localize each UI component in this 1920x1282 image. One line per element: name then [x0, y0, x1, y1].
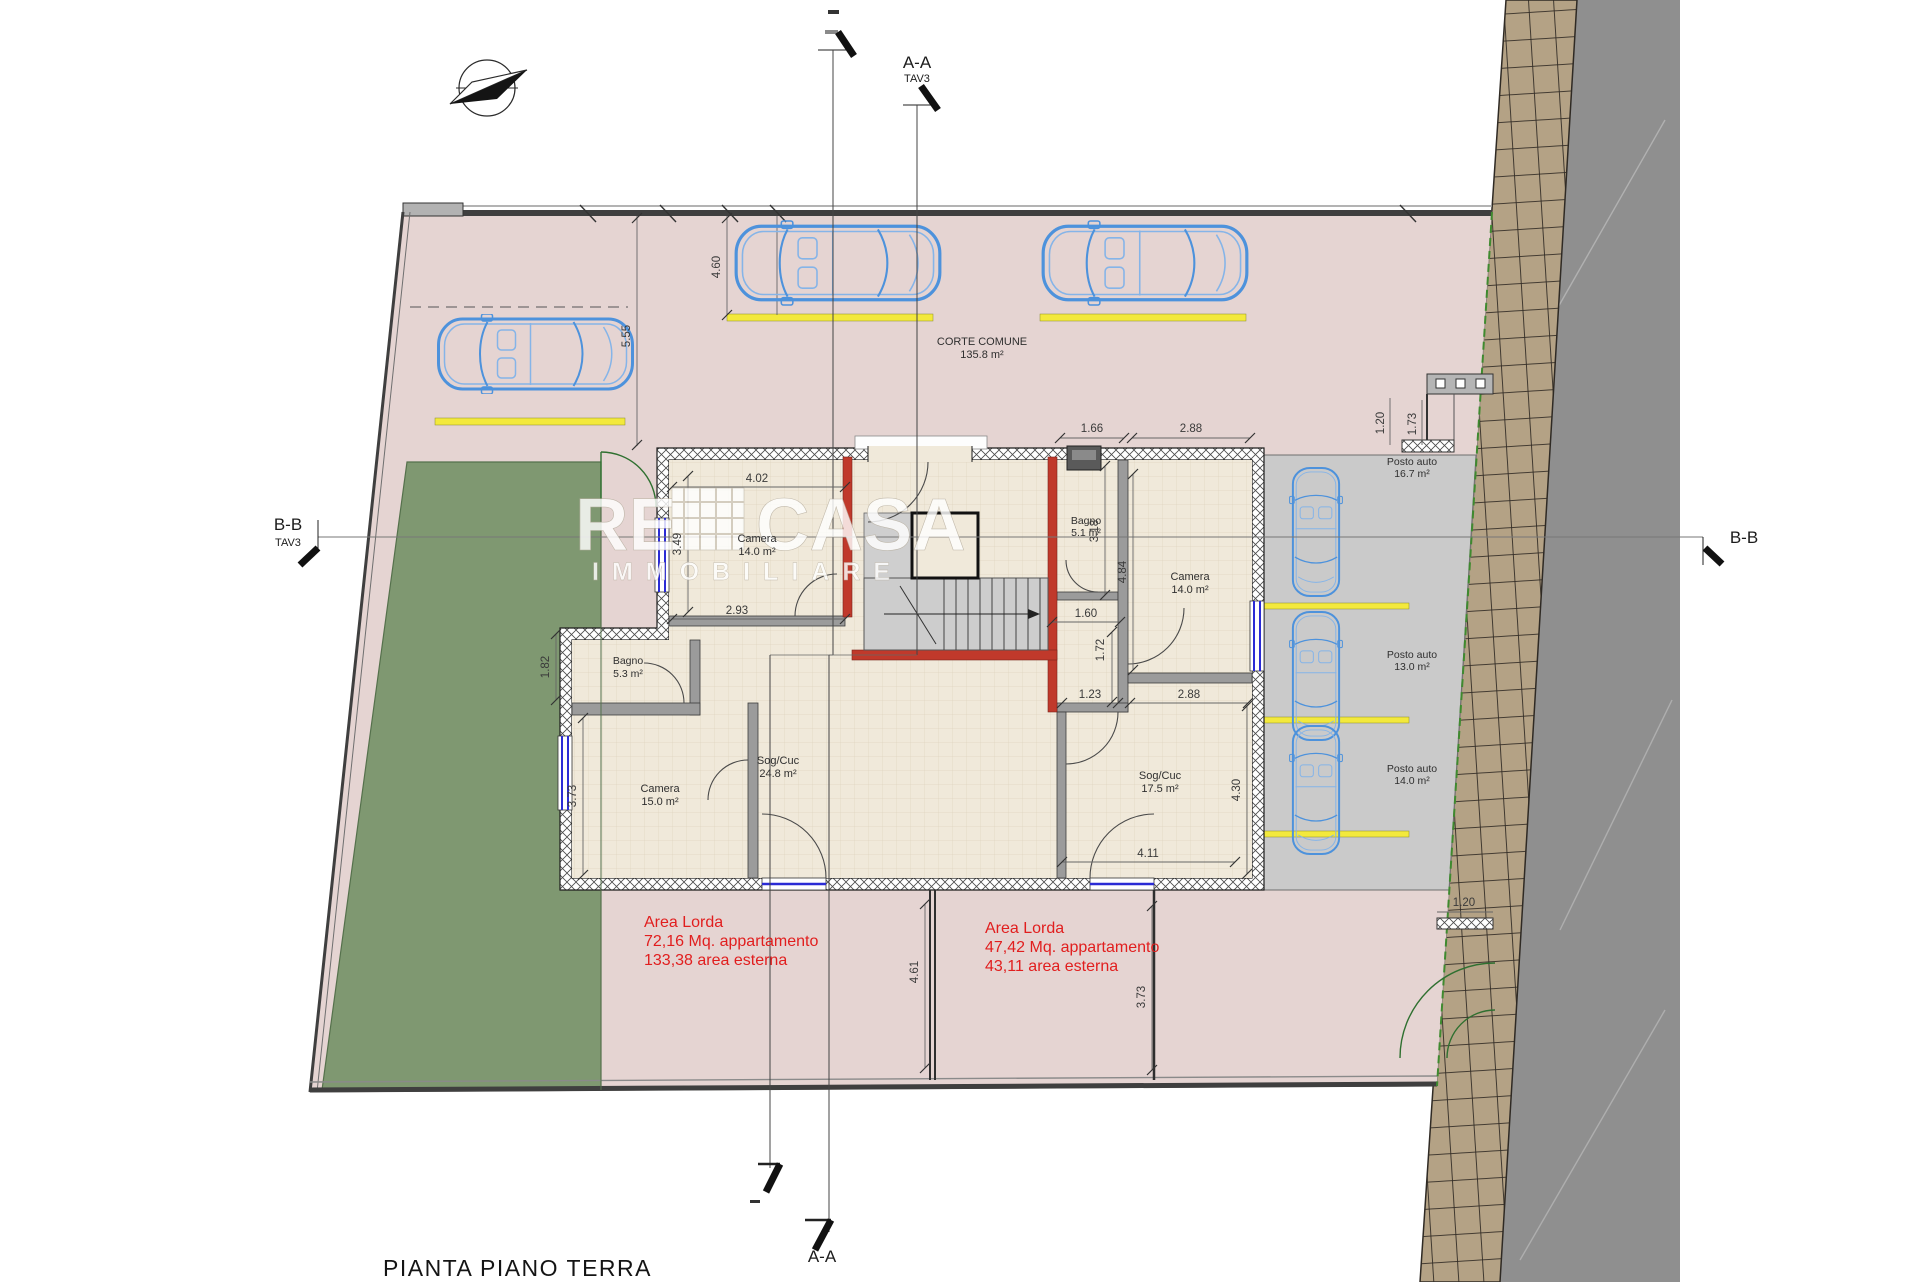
svg-text:TAV3: TAV3: [904, 73, 930, 85]
svg-text:TAV3: TAV3: [275, 537, 301, 549]
chimney-vent: [1067, 446, 1101, 470]
dim-cam14r-w: 2.88: [1180, 423, 1202, 435]
dim-hall-b: 1.23: [1079, 689, 1101, 701]
svg-text:Area Lorda: Area Lorda: [644, 914, 723, 931]
svg-text:47,42 Mq. appartamento: 47,42 Mq. appartamento: [985, 939, 1159, 956]
room-label-sogcuc175: Sog/Cuc: [1139, 770, 1182, 782]
page-title: PIANTA PIANO TERRA: [383, 1255, 652, 1281]
section-label-aa-bottom: A-A: [808, 1247, 837, 1266]
room-label-camera15: Camera: [640, 783, 680, 795]
room-label-posto3: Posto auto: [1387, 763, 1437, 775]
dim-cam14l-w: 4.02: [746, 473, 768, 485]
dim-bagno51-h: 3.18: [1089, 520, 1101, 542]
svg-text:14.0 m²: 14.0 m²: [1394, 775, 1430, 787]
svg-text:Area Lorda: Area Lorda: [985, 920, 1064, 937]
svg-text:17.5 m²: 17.5 m²: [1141, 783, 1179, 795]
svg-text:15.0 m²: 15.0 m²: [641, 796, 679, 808]
room-label-posto2: Posto auto: [1387, 649, 1437, 661]
room-label-camera14-left: Camera: [737, 533, 777, 545]
dim-br-a: 1.20: [1453, 897, 1475, 909]
entry-opening: [868, 446, 972, 462]
watermark-re: RE: [575, 483, 678, 566]
dim-court-left: 5.55: [621, 325, 633, 347]
svg-text:133,38 area esterna: 133,38 area esterna: [644, 952, 787, 969]
dim-hall-h: 1.72: [1095, 639, 1107, 661]
dim-cam14r-h: 4.84: [1117, 560, 1129, 583]
floor-plan-drawing: RE CASA IMMOBILIARE CORTE COMUNE 135.8 m…: [0, 0, 1920, 1282]
svg-text:16.7 m²: 16.7 m²: [1394, 468, 1430, 480]
svg-text:24.8 m²: 24.8 m²: [759, 768, 797, 780]
section-label-bb-right: B-B: [1730, 528, 1758, 547]
stall-divider-line: [1264, 603, 1409, 609]
section-label-bb-left: B-B: [274, 515, 302, 534]
dim-cam14l-b: 2.93: [726, 605, 748, 617]
dim-tr-b: 1.73: [1407, 413, 1419, 435]
svg-text:13.0 m²: 13.0 m²: [1394, 661, 1430, 673]
svg-text:5.3 m²: 5.3 m²: [613, 668, 643, 680]
svg-text:43,11 area esterna: 43,11 area esterna: [985, 958, 1118, 975]
watermark-immobiliare: IMMOBILIARE: [592, 558, 903, 586]
watermark-casa: CASA: [756, 483, 966, 566]
room-label-corte: CORTE COMUNE: [937, 336, 1027, 348]
dim-stall-depth: 4.60: [711, 256, 723, 278]
dim-sogr-h: 4.30: [1231, 779, 1243, 801]
dim-hall-w: 1.60: [1075, 608, 1097, 620]
dim-cam14l-h: 3.49: [672, 533, 684, 555]
room-label-sogcuc248: Sog/Cuc: [757, 755, 800, 767]
dim-terr-left: 4.61: [909, 961, 921, 983]
room-label-camera14-right: Camera: [1170, 571, 1210, 583]
dim-tr-a: 1.20: [1375, 412, 1387, 434]
svg-text:14.0 m²: 14.0 m²: [1171, 584, 1209, 596]
stall-divider-line: [1264, 717, 1409, 723]
dim-sogr-w: 2.88: [1178, 689, 1200, 701]
svg-text:72,16 Mq. appartamento: 72,16 Mq. appartamento: [644, 933, 818, 950]
dim-sogr-b: 4.11: [1137, 848, 1159, 860]
floor-plan-page: RE CASA IMMOBILIARE CORTE COMUNE 135.8 m…: [0, 0, 1920, 1282]
svg-text:14.0 m²: 14.0 m²: [738, 546, 776, 558]
room-label-bagno53: Bagno: [613, 655, 644, 667]
dim-cam15-h: 3.73: [567, 785, 579, 807]
dim-bagno51-w: 1.66: [1081, 423, 1103, 435]
dim-terr-right: 3.73: [1136, 986, 1148, 1008]
north-arrow-icon: [450, 60, 527, 116]
room-label-posto1: Posto auto: [1387, 456, 1437, 468]
section-label-aa-top: A-A: [903, 53, 932, 72]
stall-divider-line: [1264, 831, 1409, 837]
svg-text:135.8 m²: 135.8 m²: [960, 349, 1004, 361]
dim-bagno53-w: 1.82: [540, 656, 552, 678]
